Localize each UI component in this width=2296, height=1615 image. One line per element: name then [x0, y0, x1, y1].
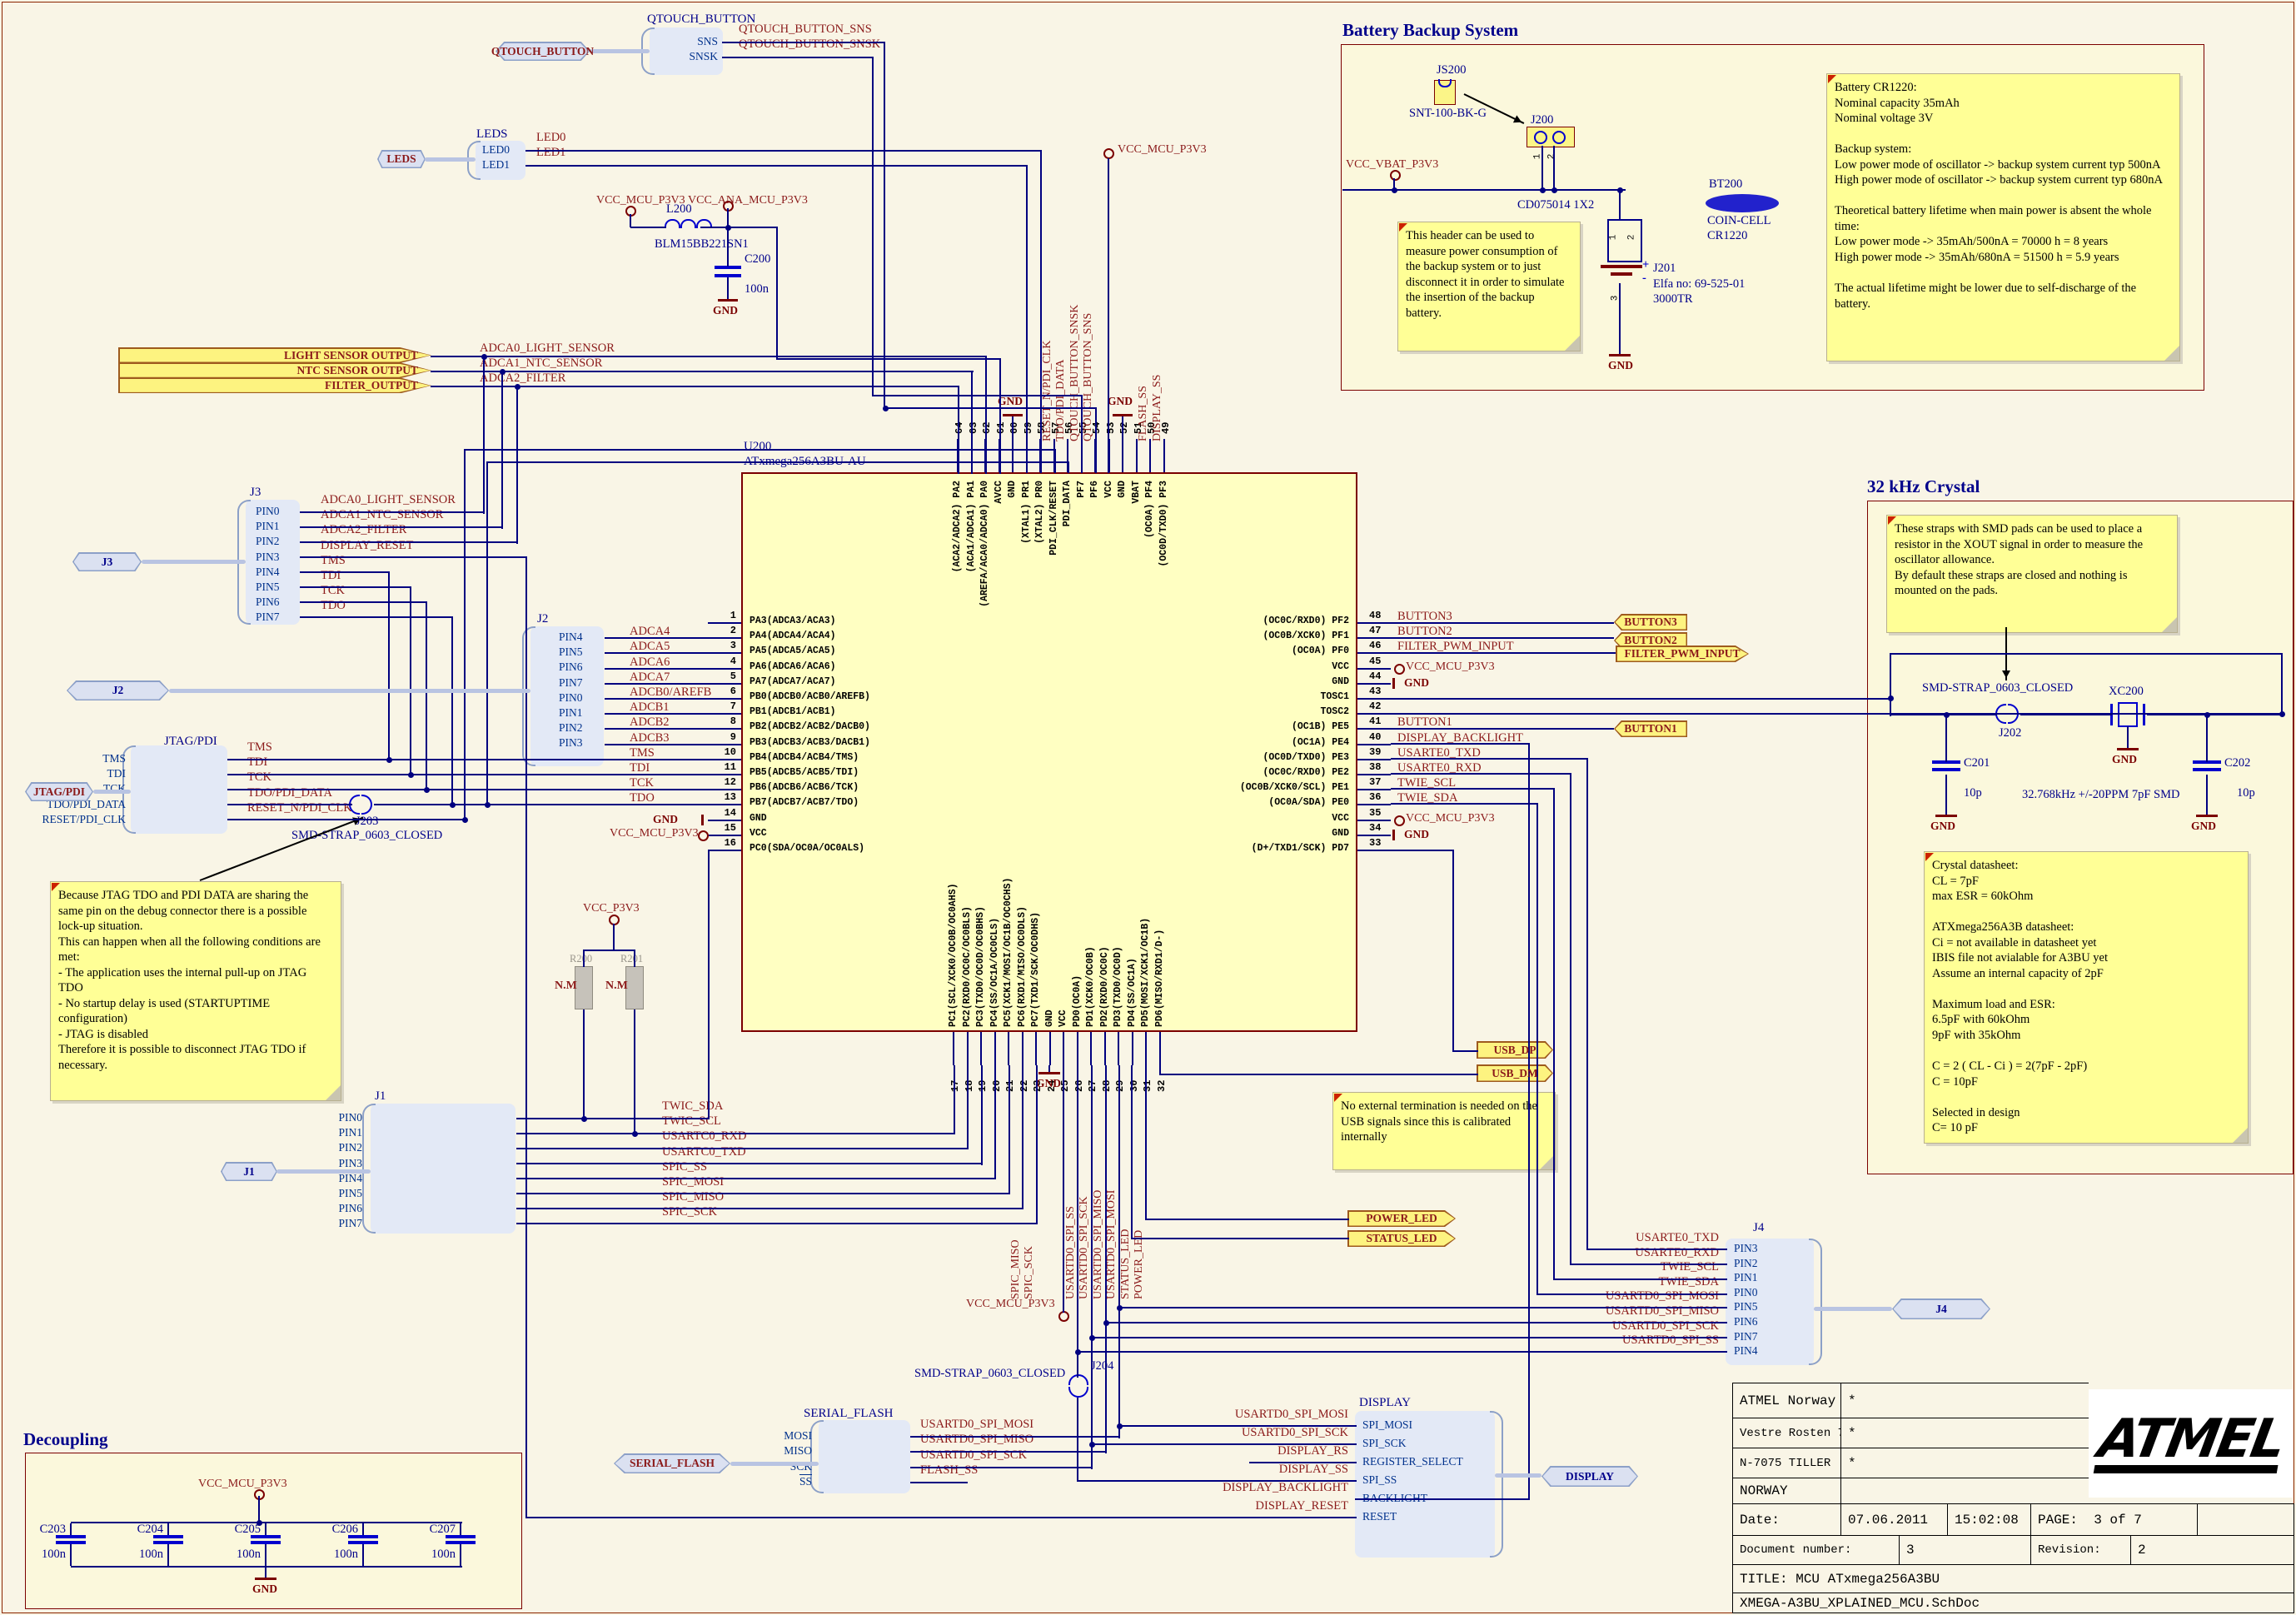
- usb-note[interactable]: No external termination is needed on the…: [1332, 1092, 1556, 1170]
- wire: [516, 1118, 710, 1119]
- battery-section-title: Battery Backup System: [1342, 20, 1518, 41]
- wire: [910, 1467, 1093, 1468]
- wire: [1945, 714, 1947, 762]
- wire: [2147, 714, 2283, 715]
- leds-harness-title: LEDS: [476, 127, 508, 142]
- wire: [1391, 758, 1588, 760]
- wire: [1095, 407, 1097, 473]
- mcu-pin: 9 PB3(ADCB3/ACB3/DACB1) ADCB3: [605, 734, 605, 749]
- j204-refdes: J204: [1091, 1359, 1113, 1373]
- wire: [727, 227, 778, 228]
- mcu-pin: 4 PA6(ADCA6/ACA6) ADCA6: [605, 658, 605, 673]
- gnd-bar: [1038, 1072, 1060, 1074]
- r201-resistor[interactable]: [625, 966, 644, 1009]
- port-button2[interactable]: BUTTON2: [1614, 632, 1687, 649]
- jtag-note[interactable]: Because JTAG TDO and PDI DATA are sharin…: [50, 881, 341, 1101]
- gnd-label: GND: [1608, 359, 1633, 372]
- wire: [613, 924, 615, 950]
- vcc-mcu-label: VCC_MCU_P3V3: [966, 1298, 1055, 1311]
- harness-cable: [730, 1462, 819, 1466]
- wire: [525, 1517, 1357, 1518]
- junction-dot: [1117, 1423, 1123, 1429]
- junction-dot: [485, 802, 491, 808]
- port-j2[interactable]: J2: [67, 680, 169, 700]
- harness-cable: [1814, 1307, 1892, 1311]
- wire: [516, 386, 518, 544]
- wire: [910, 1482, 968, 1483]
- wire: [1145, 1219, 1349, 1220]
- battery-plate-long: [1601, 265, 1642, 268]
- wire: [630, 214, 631, 227]
- mcu-pin: 44 GND GND: [1357, 673, 1358, 688]
- wire: [583, 1009, 585, 1119]
- serial-flash-harness[interactable]: [819, 1420, 910, 1493]
- wire: [265, 1568, 266, 1578]
- wire: [634, 1009, 635, 1134]
- jtag-harness[interactable]: [131, 745, 227, 834]
- wire: [727, 277, 729, 300]
- c201-refdes: C201: [1964, 756, 1990, 770]
- junction-dot: [1551, 187, 1557, 193]
- mcu-pin: 12 PB6(ADCB6/ACB6/TCK) TCK: [605, 779, 605, 794]
- port-status-led[interactable]: STATUS_LED: [1347, 1230, 1456, 1247]
- wire: [708, 850, 710, 1119]
- j2-harness-title: J2: [537, 612, 548, 626]
- port-jtag-pdi[interactable]: JTAG/PDI: [25, 782, 93, 801]
- c200-value: 100n: [745, 282, 769, 297]
- wire: [431, 356, 987, 357]
- wire: [1619, 189, 1621, 220]
- wire: [2281, 653, 2283, 715]
- port-usb-dm[interactable]: USB_DM: [1477, 1064, 1553, 1082]
- port-serial-flash[interactable]: SERIAL_FLASH: [614, 1453, 730, 1473]
- wire: [776, 227, 778, 360]
- wire: [1063, 1065, 1064, 1313]
- wire: [1118, 1308, 1120, 1438]
- r200-resistor[interactable]: [575, 966, 593, 1009]
- mcu-pin: 43 TOSC1: [1357, 688, 1358, 703]
- junction-dot: [481, 354, 487, 360]
- tb-city: N-7075 TILLER: [1740, 1457, 1830, 1470]
- j1-harness[interactable]: [371, 1104, 515, 1234]
- wire: [71, 1522, 462, 1523]
- sensor-output-port[interactable]: NTC SENSOR OUTPUT: [118, 362, 431, 378]
- wire: [525, 556, 527, 1518]
- wire: [1105, 1322, 1727, 1323]
- j201-refdes: J201: [1653, 262, 1676, 276]
- atmel-logo: ATMEL: [2089, 1389, 2293, 1498]
- wire: [227, 804, 352, 805]
- wire: [300, 571, 390, 573]
- tb-company: ATMEL Norway: [1740, 1393, 1835, 1408]
- not-mounted-label: N.M: [605, 979, 628, 993]
- bt200-value1: COIN-CELL: [1707, 214, 1771, 228]
- wire: [1091, 1065, 1093, 1339]
- wire: [451, 616, 453, 805]
- wire: [1541, 146, 1543, 191]
- harness-cable: [425, 157, 476, 162]
- tb-date: 07.06.2011: [1848, 1513, 1928, 1528]
- mcu-pin: 3 PA5(ADCA5/ACA5) ADCA5: [605, 642, 605, 657]
- port-usb-dp[interactable]: USB_DP: [1477, 1041, 1553, 1059]
- wire: [374, 804, 710, 805]
- vcc-p3v3-label: VCC_P3V3: [583, 902, 640, 915]
- junction-dot: [408, 772, 414, 778]
- wire: [583, 950, 585, 967]
- wire: [300, 556, 527, 558]
- wire: [1570, 1264, 1727, 1265]
- tb-star: *: [1848, 1426, 1856, 1441]
- wire: [1091, 1338, 1093, 1469]
- junction-dot: [2204, 712, 2210, 718]
- tb-date-label: Date:: [1740, 1513, 1780, 1528]
- j4-harness-title: J4: [1753, 1221, 1764, 1235]
- vcc-mcu-label: VCC_MCU_P3V3: [1118, 143, 1207, 157]
- wire: [227, 759, 710, 760]
- gnd-label: GND: [1930, 820, 1955, 833]
- c200-refdes: C200: [745, 252, 770, 267]
- wire: [700, 227, 729, 228]
- junction-dot: [1075, 1349, 1081, 1355]
- wire: [1131, 1065, 1133, 1239]
- wire: [872, 395, 1083, 396]
- mcu-pin: 33 (D+/TXD1/SCK) PD7: [1357, 840, 1358, 855]
- gnd-label: GND: [1108, 395, 1133, 408]
- wire: [516, 1208, 1023, 1209]
- decoupling-section-title: Decoupling: [23, 1429, 108, 1450]
- junction-dot: [1888, 695, 1894, 701]
- wire: [516, 1133, 955, 1134]
- wire: [1077, 1065, 1078, 1353]
- mcu-pin: 35 VCC VCC_MCU_P3V3: [1357, 810, 1358, 825]
- gnd-label: GND: [998, 395, 1023, 408]
- l200-refdes: L200: [666, 202, 692, 217]
- c202-refdes: C202: [2224, 756, 2250, 770]
- wire: [776, 358, 1001, 360]
- wire: [1391, 773, 1571, 775]
- wire: [1118, 1307, 1727, 1308]
- mcu-pin: 1 PA3(ADCA3/ACA3): [605, 612, 605, 627]
- tb-page: 3 of 7: [2094, 1513, 2142, 1528]
- junction-dot: [1540, 187, 1546, 193]
- vertical-net-label: DISPLAY_SS: [1151, 252, 1164, 441]
- junction-dot: [256, 1520, 262, 1526]
- junction-dot: [424, 787, 430, 793]
- mcu-pin: 42 TOSC2: [1357, 703, 1358, 718]
- wire: [516, 1148, 969, 1149]
- vertical-net-label: QTOUCH_BUTTON_SNSK: [1068, 252, 1082, 441]
- c202-plate[interactable]: [2193, 768, 2221, 771]
- wire: [1391, 622, 1614, 624]
- j201-value2: 3000TR: [1653, 292, 1693, 307]
- wire: [1105, 1065, 1107, 1324]
- wire: [884, 407, 1097, 409]
- wire: [300, 616, 452, 618]
- wire: [722, 42, 885, 43]
- wire: [1391, 788, 1555, 790]
- wire: [300, 511, 485, 513]
- wire: [1068, 461, 1069, 473]
- sensor-output-port[interactable]: FILTER_OUTPUT: [118, 377, 431, 393]
- gnd-bar: [1935, 815, 1957, 817]
- wire: [516, 1193, 1010, 1194]
- mcu-pin: 13 PB7(ADCB7/ACB7/TDO) TDO: [605, 794, 605, 809]
- junction-dot: [883, 406, 889, 411]
- wire: [1391, 850, 1454, 851]
- gnd-bar: [2117, 748, 2139, 750]
- j201-battery-holder[interactable]: 1 2: [1607, 219, 1642, 262]
- mcu-pin: 16 PC0(SDA/OC0A/OC0ALS): [605, 840, 605, 855]
- wire: [1452, 850, 1454, 1052]
- mcu-pin: 7 PB1(ADCB1/ACB1) ADCB1: [605, 703, 605, 718]
- battery-plate-short: [1611, 272, 1632, 276]
- c201-plate[interactable]: [1932, 768, 1960, 771]
- wire: [1081, 395, 1083, 473]
- wire: [1890, 653, 2283, 655]
- js200-value: SNT-100-BK-G: [1409, 107, 1487, 121]
- port-button3[interactable]: BUTTON3: [1614, 614, 1687, 631]
- vertical-net-label: USARTD0_SPI_MISO: [1092, 1109, 1105, 1299]
- gnd-bar: [1609, 354, 1631, 356]
- battery-header-note[interactable]: This header can be used to measure power…: [1397, 222, 1581, 351]
- wire: [464, 449, 466, 820]
- wire: [1036, 1065, 1038, 1224]
- wire: [1391, 728, 1614, 730]
- wire: [486, 461, 488, 805]
- wire: [954, 1065, 955, 1134]
- wire: [1118, 1425, 1357, 1427]
- serial-flash-harness-title: SERIAL_FLASH: [804, 1407, 894, 1421]
- wire: [1145, 1065, 1147, 1220]
- gnd-bar: [255, 1578, 276, 1580]
- wire: [872, 57, 874, 396]
- wire: [1342, 189, 1626, 191]
- wire: [1077, 1480, 1357, 1482]
- wire: [71, 1566, 462, 1568]
- harness-cable: [1495, 1473, 1541, 1478]
- j201-value1: Elfa no: 69-525-01: [1653, 277, 1745, 292]
- mcu-pin: 11 PB5(ADCB5/ACB5/TDI) TDI: [605, 764, 605, 779]
- tb-title: TITLE: MCU ATxmega256A3BU: [1740, 1572, 1940, 1587]
- wire: [1452, 1050, 1478, 1052]
- vertical-net-label: POWER_LED: [1133, 1109, 1146, 1299]
- tb-doc-label: Document number:: [1740, 1543, 1851, 1557]
- junction-dot: [515, 384, 520, 390]
- gnd-bar: [1003, 414, 1023, 416]
- gnd-label: GND: [252, 1583, 277, 1596]
- coin-cell-symbol[interactable]: [1706, 194, 1779, 212]
- r201-refdes: R201: [620, 953, 643, 965]
- wire: [1553, 146, 1555, 191]
- wire: [300, 526, 503, 528]
- junction-dot: [1103, 1320, 1109, 1326]
- wire: [1159, 1074, 1478, 1075]
- wire: [1009, 1065, 1010, 1194]
- mcu-pin: 46 (OC0A) PF0 FILTER_PWM_INPUT: [1357, 642, 1358, 657]
- mcu-pin: 39 (OC0D/TXD0) PE3 USARTE0_TXD: [1357, 749, 1358, 764]
- tb-address: Vestre Rosten 79: [1740, 1427, 1840, 1440]
- crystal-symbol[interactable]: [2118, 702, 2138, 727]
- wire: [985, 356, 987, 474]
- wire: [300, 541, 518, 543]
- l200-value: BLM15BB221SN1: [655, 237, 749, 252]
- mcu-pin: 38 (OC0C/RXD0) PE2 USARTE0_RXD: [1357, 764, 1358, 779]
- mcu-pin: 6 PB0(ADCB0/ACB0/AREFB) ADCB0/AREFB: [605, 688, 605, 703]
- vertical-net-label: USARTD0_SPI_SCK: [1078, 1109, 1091, 1299]
- wire: [1528, 743, 1530, 1500]
- wire: [431, 386, 959, 387]
- wire: [2206, 775, 2208, 816]
- wire: [1391, 743, 1530, 745]
- wire: [722, 57, 874, 58]
- mcu-pin: 36 (OC0A/SDA) PE0 TWIE_SDA: [1357, 794, 1358, 809]
- mcu-pin: 10 PB4(ADCB4/ACB4/TMS) TMS: [605, 749, 605, 764]
- junction-dot: [581, 1116, 587, 1122]
- vertical-net-label: RESET_N/PDI_CLK: [1041, 252, 1054, 441]
- wire: [258, 1496, 260, 1523]
- display-harness-title: DISPLAY: [1359, 1396, 1411, 1410]
- wire: [1391, 652, 1616, 654]
- mcu-pin: 5 PA7(ADCA7/ACA7) ADCA7: [605, 673, 605, 688]
- wire: [1122, 416, 1123, 472]
- junction-dot: [2279, 711, 2285, 717]
- xc200-refdes: XC200: [2109, 685, 2144, 699]
- wire: [1355, 1498, 1530, 1500]
- crystal-strap-note[interactable]: These straps with SMD pads can be used t…: [1886, 515, 2178, 633]
- wire: [1105, 1323, 1107, 1453]
- junction-dot: [1089, 1442, 1095, 1448]
- junction-dot: [632, 1131, 638, 1137]
- sensor-output-port[interactable]: LIGHT SENSOR OUTPUT: [118, 347, 431, 363]
- vertical-net-label: QTOUCH_BUTTON_SNS: [1082, 252, 1095, 441]
- wire: [999, 358, 1001, 474]
- wire: [516, 1178, 996, 1179]
- mcu-pin: 48 (OC0C/RXD0) PF2 BUTTON3: [1357, 612, 1358, 627]
- j1-harness-title: J1: [375, 1089, 386, 1104]
- battery-info-note[interactable]: Battery CR1220: Nominal capacity 35mAh N…: [1826, 73, 2180, 361]
- j203-strap[interactable]: [349, 795, 372, 815]
- j200-value: CD075014 1X2: [1517, 198, 1594, 212]
- wire: [1091, 1337, 1727, 1338]
- port-j1[interactable]: J1: [221, 1162, 277, 1181]
- gnd-bar: [2196, 815, 2218, 817]
- j204-strap[interactable]: [1068, 1374, 1088, 1398]
- harness-cable: [590, 49, 650, 53]
- wire: [1022, 1065, 1023, 1209]
- vertical-net-label: SPIC_MISO: [1009, 1109, 1023, 1299]
- crystal-datasheet-note[interactable]: Crystal datasheet: CL = 7pF max ESR = 60…: [1924, 851, 2249, 1144]
- battery-plus: +: [1642, 258, 1649, 272]
- tb-page-label: PAGE:: [2038, 1513, 2078, 1528]
- wire: [634, 950, 635, 967]
- j200-pin2: 2: [1546, 154, 1556, 160]
- wire: [1391, 803, 1538, 805]
- c202-value: 10p: [2237, 786, 2255, 800]
- tb-doc-number: 3: [1906, 1543, 1915, 1558]
- wire: [1108, 158, 1109, 473]
- junction-dot: [1089, 1335, 1095, 1341]
- tb-revision-label: Revision:: [2038, 1543, 2101, 1557]
- harness-cable: [169, 689, 530, 693]
- vertical-net-label: TDO/PDI_DATA: [1054, 252, 1068, 441]
- gnd-bar: [1113, 414, 1133, 416]
- wire: [1536, 803, 1538, 1295]
- vcc-mcu-label: VCC_MCU_P3V3: [198, 1478, 287, 1491]
- wire: [516, 1223, 1038, 1224]
- port-display[interactable]: DISPLAY: [1541, 1466, 1638, 1487]
- mcu-pin: 40 (OC1A) PE4 DISPLAY_BACKLIGHT: [1357, 734, 1358, 749]
- port-j4[interactable]: J4: [1892, 1298, 1990, 1319]
- vcc-ana-label: VCC_ANA_MCU_P3V3: [688, 194, 808, 207]
- gnd-label: GND: [713, 304, 738, 317]
- sensor-port-row: NTC SENSOR OUTPUT ADCA1_NTC_SENSOR: [118, 362, 431, 379]
- j3-harness-title: J3: [250, 486, 261, 500]
- tb-star: *: [1848, 1393, 1856, 1408]
- vertical-net-label: FLASH_SS: [1137, 252, 1150, 441]
- mcu-pin: 34 GND GND: [1357, 825, 1358, 840]
- wire: [1619, 283, 1621, 355]
- wire: [1040, 150, 1042, 473]
- port-button1[interactable]: BUTTON1: [1614, 720, 1687, 737]
- j200-header[interactable]: [1527, 127, 1575, 147]
- r200-refdes: R200: [570, 953, 592, 965]
- crystal-section-title: 32 kHz Crystal: [1867, 476, 1980, 497]
- junction-dot: [725, 225, 731, 231]
- wire: [227, 819, 466, 820]
- mcu-pin: 47 (OC0B/XCK0) PF1 BUTTON2: [1357, 627, 1358, 642]
- wire: [994, 1065, 996, 1179]
- mcu-pin: 37 (OC0B/XCK0/SCL) PE1 TWIE_SCL: [1357, 779, 1358, 794]
- wire: [410, 586, 411, 775]
- junction-dot: [1617, 187, 1623, 193]
- j204-value: SMD-STRAP_0603_CLOSED: [914, 1367, 1065, 1381]
- wire: [300, 586, 411, 588]
- wire: [525, 150, 1042, 152]
- wire: [967, 1065, 969, 1149]
- wire: [1586, 758, 1588, 1250]
- battery-minus: -: [1642, 272, 1646, 286]
- js200-jumper[interactable]: [1434, 80, 1456, 105]
- schematic-sheet: QTOUCH_BUTTON SNS QTOUCH_BUTTON_SNS SNSK…: [0, 0, 2296, 1615]
- port-qtouch-button[interactable]: QTOUCH_BUTTON: [496, 42, 590, 61]
- tb-country: NORWAY: [1740, 1483, 1788, 1498]
- port-filter-pwm-input[interactable]: FILTER_PWM_INPUT: [1616, 646, 1749, 662]
- mcu-pin: 45 VCC VCC_MCU_P3V3: [1357, 658, 1358, 673]
- not-mounted-label: N.M: [555, 979, 577, 993]
- harness-cable: [142, 560, 246, 564]
- tb-star: *: [1848, 1456, 1856, 1471]
- tb-revision: 2: [2138, 1543, 2146, 1558]
- js200-refdes: JS200: [1437, 63, 1466, 77]
- junction-dot: [500, 369, 506, 375]
- wire: [431, 371, 974, 372]
- mcu-pin: 2 PA4(ADCA4/ACA4) ADCA4: [605, 627, 605, 642]
- wire: [1077, 1351, 1727, 1353]
- port-power-led[interactable]: POWER_LED: [1347, 1210, 1456, 1227]
- wire: [583, 950, 635, 951]
- vcc-vbat-label: VCC_VBAT_P3V3: [1346, 158, 1438, 172]
- vcc-vbat-power-port: [1390, 170, 1401, 181]
- wire: [483, 356, 485, 514]
- port-leds[interactable]: LEDS: [377, 150, 426, 168]
- wire: [1391, 698, 1891, 700]
- j200-refdes: J200: [1531, 113, 1553, 127]
- wire: [1026, 165, 1028, 473]
- port-j3[interactable]: J3: [72, 552, 142, 571]
- wire: [426, 601, 427, 790]
- wire: [630, 227, 666, 228]
- harness-cable: [93, 790, 131, 794]
